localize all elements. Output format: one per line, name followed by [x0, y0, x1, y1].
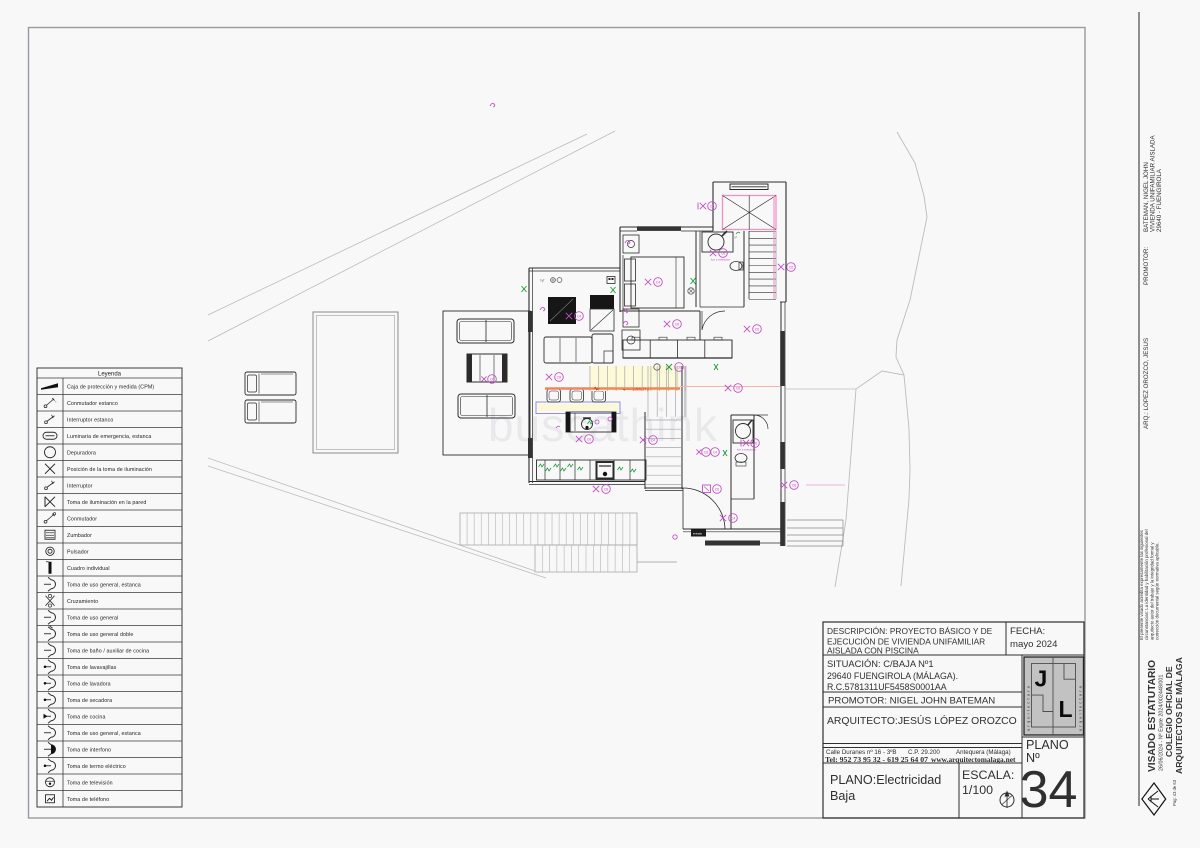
svg-text:C6: C6	[792, 483, 796, 487]
svg-text:PROMOTOR: NIGEL JOHN BATEMAN: PROMOTOR: NIGEL JOHN BATEMAN	[828, 696, 995, 707]
svg-text:Toma de lavadora: Toma de lavadora	[67, 681, 111, 687]
svg-text:◄—— subida 17 p.: ◄—— subida 17 p.	[622, 388, 650, 392]
svg-text:Interruptor: Interruptor	[67, 483, 93, 489]
svg-text:C4: C4	[577, 314, 581, 318]
svg-text:C6: C6	[490, 377, 494, 381]
svg-text:C8: C8	[604, 487, 608, 491]
svg-text:C6: C6	[587, 437, 591, 441]
svg-text:ARQUITECTOS DE MÁLAGA: ARQUITECTOS DE MÁLAGA	[1174, 657, 1184, 774]
svg-text:C6: C6	[710, 204, 714, 208]
svg-text:C6: C6	[736, 386, 740, 390]
svg-text:Baja: Baja	[830, 789, 855, 803]
svg-text:C6: C6	[753, 441, 757, 445]
svg-text:Toma de teléfono: Toma de teléfono	[67, 797, 109, 803]
svg-text:C4: C4	[656, 280, 660, 284]
svg-text:Pulsador: Pulsador	[67, 549, 89, 555]
svg-text:Toma de uso general doble: Toma de uso general doble	[67, 632, 133, 638]
svg-text:Toma de baño / auxiliar de coc: Toma de baño / auxiliar de cocina	[67, 648, 149, 654]
svg-text:Conmutador estanco: Conmutador estanco	[67, 401, 118, 407]
svg-text:luz y extractor: luz y extractor	[711, 258, 730, 262]
svg-text:Toma de interfono: Toma de interfono	[67, 747, 111, 753]
svg-text:1/100: 1/100	[962, 783, 993, 797]
svg-text:entrada: entrada	[693, 532, 702, 536]
svg-text:AISLADA CON PISCINA: AISLADA CON PISCINA	[827, 645, 919, 655]
svg-text:C6: C6	[755, 327, 759, 331]
svg-text:Conmutador: Conmutador	[67, 516, 97, 522]
svg-text:Toma de iluminación en la pare: Toma de iluminación en la pared	[67, 500, 146, 506]
svg-text:Cuadro individual: Cuadro individual	[67, 566, 110, 572]
svg-text:C6: C6	[704, 450, 708, 454]
svg-text:C8: C8	[557, 375, 561, 379]
svg-text:R.C.5781311UF5458S0001AA: R.C.5781311UF5458S0001AA	[827, 682, 947, 692]
svg-text:Toma de termo eléctrico: Toma de termo eléctrico	[67, 764, 126, 770]
svg-text:C6: C6	[715, 487, 719, 491]
svg-text:Toma de lavavajillas: Toma de lavavajillas	[67, 665, 117, 671]
svg-text:J: J	[1035, 666, 1048, 692]
svg-text:ARQ.: LOPEZ OROZCO, JESUS: ARQ.: LOPEZ OROZCO, JESUS	[1143, 338, 1150, 429]
svg-text:C6: C6	[789, 265, 793, 269]
svg-text:ARQUITECTO:JESÚS LÓPEZ OROZCO: ARQUITECTO:JESÚS LÓPEZ OROZCO	[827, 714, 1017, 727]
svg-text:Toma de uso general: Toma de uso general	[67, 615, 118, 621]
svg-text:Zumbador: Zumbador	[67, 533, 92, 539]
svg-text:C6: C6	[677, 365, 681, 369]
svg-text:Toma de uso general, estanca: Toma de uso general, estanca	[67, 582, 141, 588]
svg-text:PROMOTOR:: PROMOTOR:	[1143, 247, 1150, 285]
svg-text:Toma de secadora: Toma de secadora	[67, 698, 112, 704]
svg-text:29640 - FUENGIROLA: 29640 - FUENGIROLA	[1156, 168, 1163, 232]
svg-text:C4: C4	[651, 438, 655, 442]
svg-text:www.arquitectomalaga.net: www.arquitectomalaga.net	[931, 755, 1016, 764]
svg-text:Depuradora: Depuradora	[67, 450, 96, 456]
svg-text:Posición de la toma de ilumina: Posición de la toma de iluminación	[67, 467, 152, 473]
svg-text:L: L	[1059, 696, 1073, 722]
svg-text:DESCRIPCIÓN: PROYECTO BÁSICO Y: DESCRIPCIÓN: PROYECTO BÁSICO Y DE	[827, 626, 993, 636]
svg-text:PLANO:Electricidad: PLANO:Electricidad	[830, 773, 941, 787]
svg-text:C6: C6	[675, 322, 679, 326]
svg-text:a r q u i t e c t u r a: a r q u i t e c t u r a	[1079, 685, 1083, 731]
svg-text:FECHA:: FECHA:	[1010, 626, 1045, 637]
svg-text:hyf: hyf	[540, 279, 544, 283]
svg-text:Tel: 952 73 95 32 - 619 25 64: Tel: 952 73 95 32 - 619 25 64 07	[825, 755, 928, 764]
svg-text:C6: C6	[721, 251, 725, 255]
svg-text:29640 FUENGIROLA (MÁLAGA).: 29640 FUENGIROLA (MÁLAGA).	[827, 671, 958, 681]
svg-text:luz y extractor: luz y extractor	[737, 448, 756, 452]
svg-text:Interruptor estanco: Interruptor estanco	[67, 417, 113, 423]
svg-text:Toma de cocina: Toma de cocina	[67, 714, 106, 720]
svg-text:ESCALA:: ESCALA:	[962, 768, 1014, 782]
svg-text:mayo 2024: mayo 2024	[1010, 639, 1058, 650]
svg-text:Pag: 43 de 63: Pag: 43 de 63	[1172, 779, 1177, 806]
svg-text:corrección documental según no: corrección documental según normativa ap…	[1155, 542, 1160, 640]
svg-text:Luminaria de emergencia, estan: Luminaria de emergencia, estanca	[67, 434, 151, 440]
svg-text:VISADO ESTATUTARIO: VISADO ESTATUTARIO	[1147, 660, 1158, 772]
svg-text:SITUACIÓN: C/BAJA Nº1: SITUACIÓN: C/BAJA Nº1	[827, 658, 934, 669]
svg-text:Caja de protección y medida (C: Caja de protección y medida (CPM)	[67, 384, 154, 390]
svg-text:C4: C4	[713, 450, 717, 454]
svg-text:hyf: hyf	[733, 235, 737, 239]
svg-text:Toma de uso general, estanca: Toma de uso general, estanca	[67, 731, 141, 737]
svg-text:COLEGIO OFICIAL DE: COLEGIO OFICIAL DE	[1164, 666, 1174, 757]
svg-text:C4: C4	[731, 516, 735, 520]
svg-text:Leyenda: Leyenda	[98, 372, 122, 378]
svg-text:PLANO: PLANO	[1026, 738, 1069, 752]
svg-text:a r q u i t e c t u r a: a r q u i t e c t u r a	[1027, 685, 1031, 731]
svg-text:Toma de televisión: Toma de televisión	[67, 780, 113, 786]
svg-text:Cruzamiento: Cruzamiento	[67, 599, 98, 605]
svg-text:34: 34	[1020, 761, 1078, 819]
